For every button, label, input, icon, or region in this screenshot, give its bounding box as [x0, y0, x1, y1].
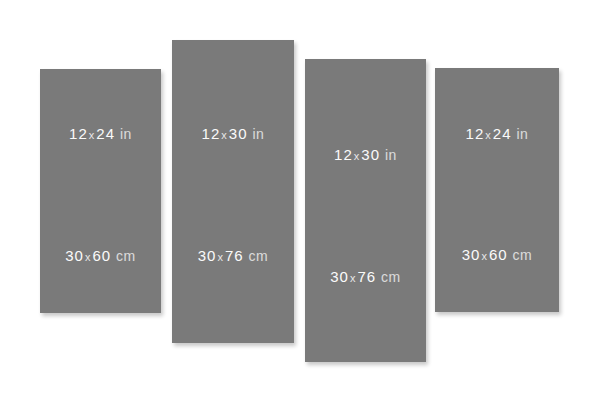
dimension-separator: x [84, 251, 93, 263]
cm-height-value: 60 [489, 246, 508, 263]
inches-width-value: 12 [202, 125, 221, 142]
panel-2-cm-label: 30x76cm [172, 247, 294, 264]
inches-width-value: 12 [466, 125, 485, 142]
inches-width-value: 12 [69, 125, 88, 142]
dimension-separator: x [220, 129, 229, 141]
cm-height-value: 76 [357, 268, 376, 285]
panel-2-inches-label: 12x30in [172, 125, 294, 142]
cm-width-value: 30 [198, 247, 217, 264]
canvas-panel-2: 12x30in 30x76cm [172, 40, 294, 343]
inches-unit: in [385, 147, 397, 163]
dimension-separator: x [480, 250, 489, 262]
inches-unit: in [516, 126, 528, 142]
inches-height-value: 30 [229, 125, 248, 142]
cm-height-value: 60 [92, 247, 111, 264]
cm-unit: cm [381, 269, 401, 285]
dimension-separator: x [88, 129, 97, 141]
inches-height-value: 24 [493, 125, 512, 142]
cm-width-value: 30 [462, 246, 481, 263]
dimension-separator: x [484, 129, 493, 141]
inches-width-value: 12 [334, 146, 353, 163]
cm-unit: cm [513, 247, 533, 263]
dimension-separator: x [349, 272, 358, 284]
canvas-panel-3: 12x30in 30x76cm [305, 59, 426, 362]
panel-4-cm-label: 30x60cm [435, 246, 559, 263]
inches-height-value: 24 [96, 125, 115, 142]
canvas-size-diagram: 12x24in 30x60cm 12x30in 30x76cm 12x30in … [0, 0, 600, 407]
cm-height-value: 76 [225, 247, 244, 264]
panel-1-inches-label: 12x24in [40, 125, 161, 142]
cm-width-value: 30 [65, 247, 84, 264]
inches-unit: in [252, 126, 264, 142]
panel-3-cm-label: 30x76cm [305, 268, 426, 285]
panel-3-inches-label: 12x30in [305, 146, 426, 163]
dimension-separator: x [216, 251, 225, 263]
panel-1-cm-label: 30x60cm [40, 247, 161, 264]
dimension-separator: x [353, 150, 362, 162]
canvas-panel-4: 12x24in 30x60cm [435, 68, 559, 312]
cm-width-value: 30 [330, 268, 349, 285]
cm-unit: cm [116, 248, 136, 264]
cm-unit: cm [249, 248, 269, 264]
canvas-panel-1: 12x24in 30x60cm [40, 69, 161, 313]
panel-4-inches-label: 12x24in [435, 125, 559, 142]
inches-height-value: 30 [361, 146, 380, 163]
inches-unit: in [120, 126, 132, 142]
